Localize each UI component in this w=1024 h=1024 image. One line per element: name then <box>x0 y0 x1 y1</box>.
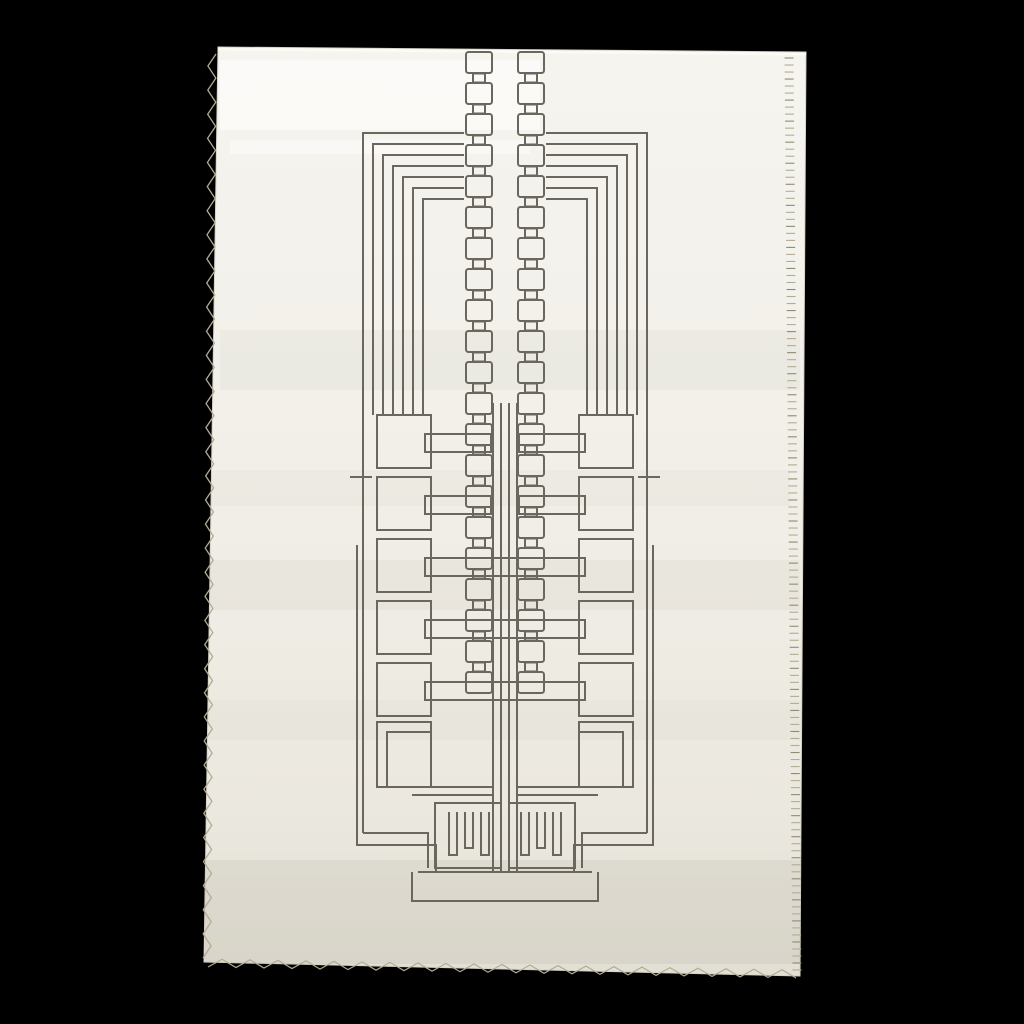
fabric-streak <box>205 930 805 964</box>
fabric-streak <box>210 560 800 610</box>
fabric-streak <box>205 860 805 930</box>
product-photo <box>0 0 1024 1024</box>
fabric-streak <box>220 330 800 390</box>
textile-photo-canvas <box>0 0 1024 1024</box>
fabric-streak <box>205 700 805 740</box>
fabric-panel <box>204 47 806 976</box>
